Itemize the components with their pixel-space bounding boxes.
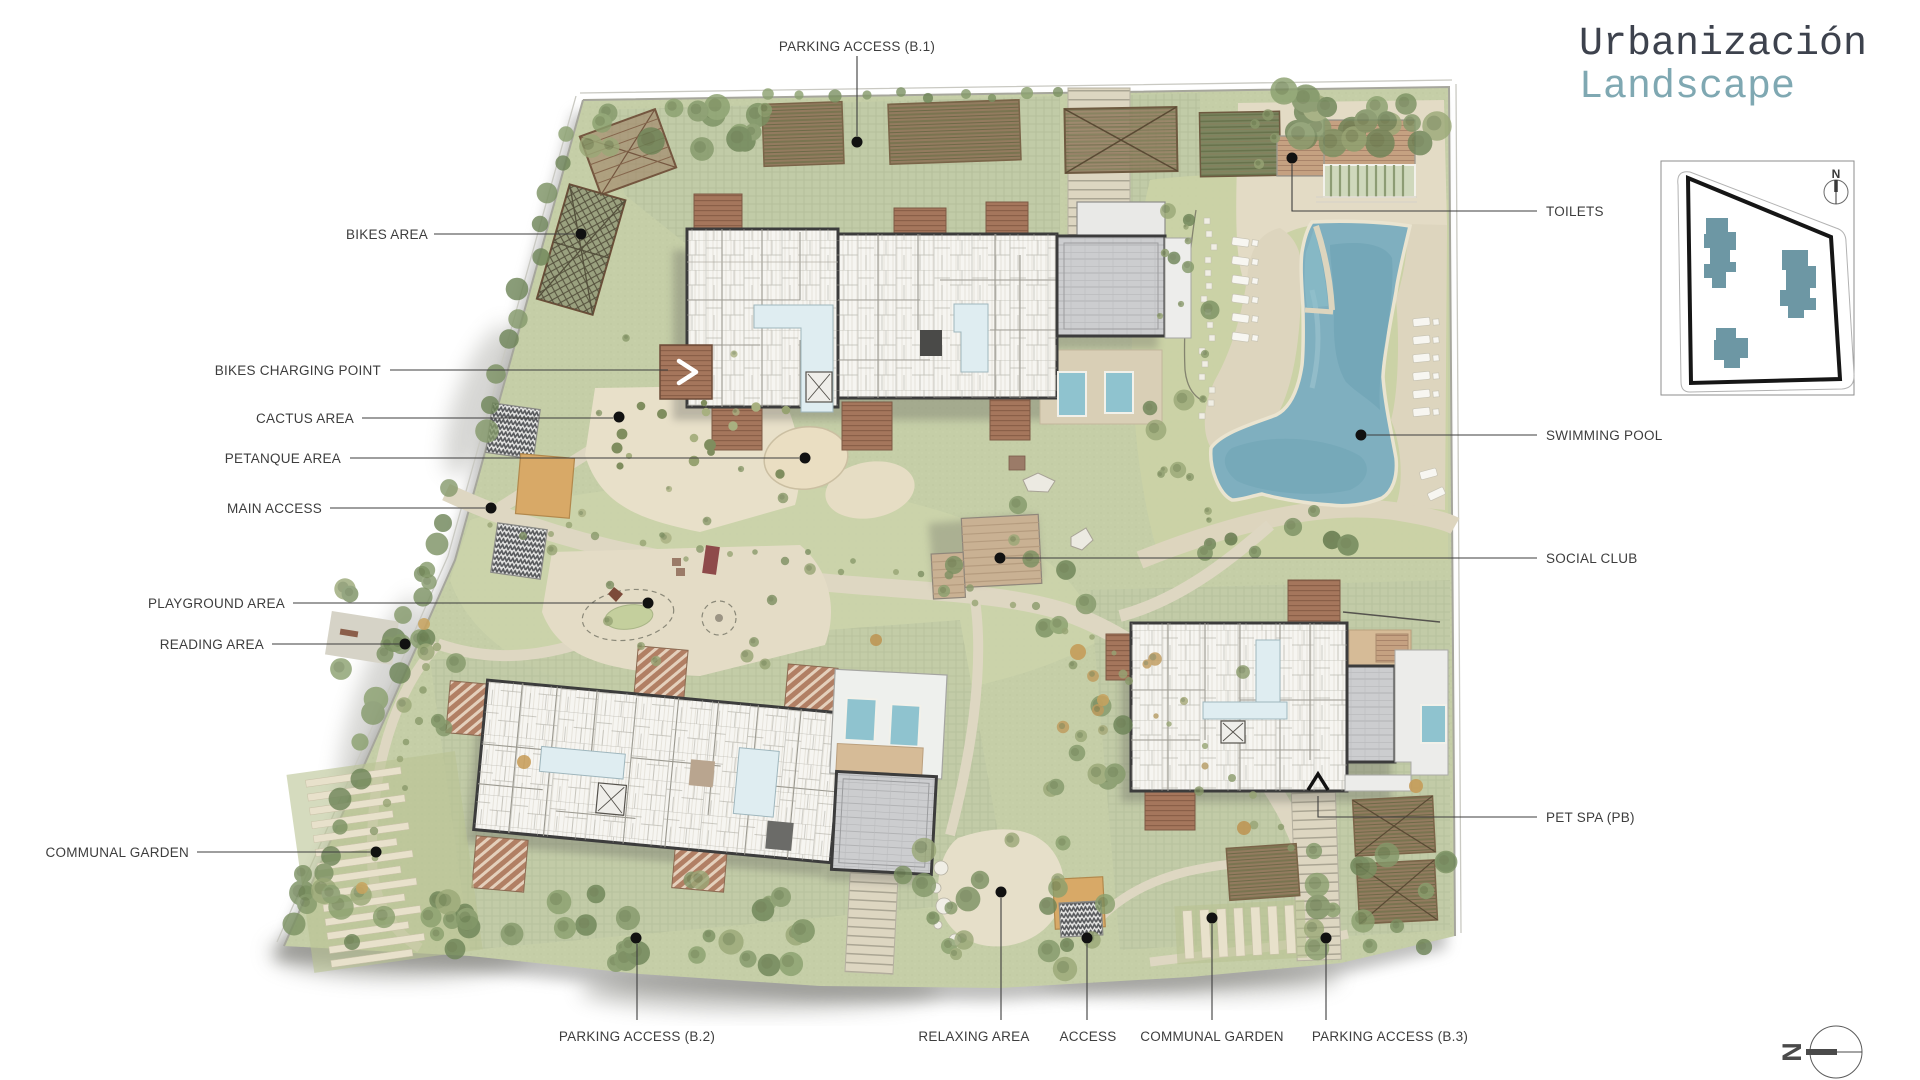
svg-text:READING AREA: READING AREA bbox=[160, 637, 264, 652]
svg-text:MAIN ACCESS: MAIN ACCESS bbox=[227, 501, 322, 516]
svg-text:BIKES CHARGING POINT: BIKES CHARGING POINT bbox=[215, 363, 381, 378]
svg-text:Landscape: Landscape bbox=[1579, 65, 1795, 110]
svg-text:COMMUNAL GARDEN: COMMUNAL GARDEN bbox=[45, 845, 189, 860]
svg-text:COMMUNAL GARDEN: COMMUNAL GARDEN bbox=[1140, 1029, 1284, 1044]
svg-text:CACTUS AREA: CACTUS AREA bbox=[256, 411, 354, 426]
svg-text:N: N bbox=[1832, 167, 1841, 181]
svg-text:Urbanización: Urbanización bbox=[1579, 22, 1867, 67]
svg-text:PARKING ACCESS (B.2): PARKING ACCESS (B.2) bbox=[559, 1029, 715, 1044]
svg-text:RELAXING AREA: RELAXING AREA bbox=[918, 1029, 1029, 1044]
svg-text:PLAYGROUND AREA: PLAYGROUND AREA bbox=[148, 596, 285, 611]
svg-text:PARKING ACCESS (B.1): PARKING ACCESS (B.1) bbox=[779, 39, 935, 54]
svg-text:N: N bbox=[1777, 1042, 1807, 1062]
svg-text:PETANQUE AREA: PETANQUE AREA bbox=[225, 451, 341, 466]
svg-text:SWIMMING POOL: SWIMMING POOL bbox=[1546, 428, 1663, 443]
svg-text:ACCESS: ACCESS bbox=[1059, 1029, 1116, 1044]
svg-text:PET SPA (PB): PET SPA (PB) bbox=[1546, 810, 1635, 825]
svg-text:PARKING ACCESS (B.3): PARKING ACCESS (B.3) bbox=[1312, 1029, 1468, 1044]
svg-text:TOILETS: TOILETS bbox=[1546, 204, 1604, 219]
svg-text:SOCIAL CLUB: SOCIAL CLUB bbox=[1546, 551, 1638, 566]
svg-text:BIKES AREA: BIKES AREA bbox=[346, 227, 428, 242]
